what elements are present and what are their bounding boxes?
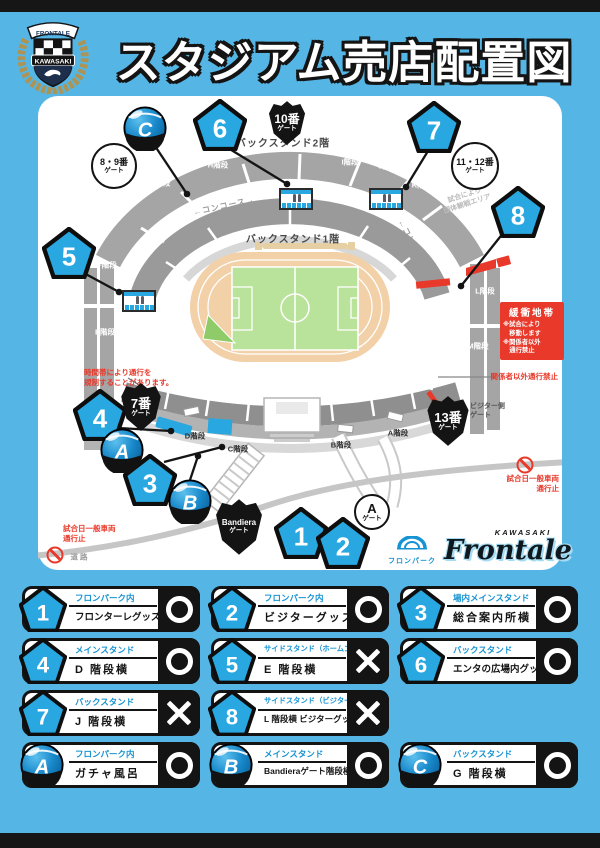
legend-category-label: 場内メインスタンド <box>453 592 529 604</box>
road-label: 道路 <box>71 552 90 563</box>
legend-category-label: フロンパーク内 <box>75 592 135 604</box>
legend-divider <box>447 761 535 763</box>
legend-status-box <box>158 742 200 788</box>
legend-divider <box>69 761 157 763</box>
legend-card-8: 8 サイドスタンド（ビジターゴール裏） L 階段横 ビジターグッズ売店 <box>211 690 389 736</box>
legend-divider <box>258 709 346 711</box>
legend-divider <box>69 657 157 659</box>
stair-label: B階段 <box>331 440 351 451</box>
badge-number: 2 <box>336 532 350 562</box>
stair-label: D階段 <box>185 431 205 442</box>
map-badge-6: 6 <box>193 99 247 151</box>
badge-number: 4 <box>37 652 50 677</box>
badge-number: 7 <box>427 116 441 146</box>
badge-number: 8 <box>226 704 238 729</box>
legend-status-box <box>347 638 389 684</box>
gate-text: Aゲート <box>362 502 382 523</box>
legend-divider <box>69 709 157 711</box>
badge-number: 3 <box>415 600 427 625</box>
kiosk-roof <box>281 190 311 194</box>
shop-kiosk-icon <box>122 290 156 312</box>
legend-status-box <box>158 690 200 736</box>
legend-location-name: Bandieraゲート階段横 <box>264 765 351 777</box>
stair-label: I階段 <box>341 157 358 168</box>
note-line: ビジター側 <box>470 402 505 411</box>
legend-location-name: E 階段横 <box>264 661 317 677</box>
legend-card-A: A フロンパーク内 ガチャ風呂 <box>22 742 200 788</box>
badge-letter: A <box>34 757 50 779</box>
map-badge-A: A <box>99 427 145 473</box>
gate-word: ゲート <box>222 528 256 535</box>
visitor-side-gate-label: ビジター側ゲート <box>470 402 505 420</box>
fronpark-logo: フロンパーク <box>388 536 436 566</box>
badge-letter: C <box>138 120 153 142</box>
legend-location-name: D 階段横 <box>75 661 129 677</box>
stair-label: H階段 <box>208 160 228 171</box>
status-closed-x-icon <box>355 648 381 674</box>
concourse-label: ←コンコース→ <box>192 194 256 218</box>
svg-text:KAWASAKI: KAWASAKI <box>35 58 72 65</box>
map-badge-B: B <box>167 478 213 524</box>
legend-status-box <box>158 586 200 632</box>
legend-card-2: 2 フロンパーク内 ビジターグッズ売店 <box>211 586 389 632</box>
gate-name: 13番 <box>434 411 461 424</box>
legend-card-6: 6 バックスタンド エンタの広場内グッズ売店 <box>400 638 578 684</box>
gate-text: Bandieraゲート <box>222 519 256 535</box>
gate-word: ゲート <box>131 411 151 418</box>
legend-card-4: 4 メインスタンド D 階段横 <box>22 638 200 684</box>
legend-badge-icon: 5 <box>208 638 256 689</box>
legend-location-name: G 階段横 <box>453 765 508 781</box>
shop-kiosk-icon <box>279 188 313 210</box>
note-line: ゲート <box>470 411 505 420</box>
kiosk-person-icon <box>388 194 391 202</box>
legend-category-label: メインスタンド <box>264 748 323 760</box>
legend-status-box <box>347 690 389 736</box>
gate-word: ゲート <box>434 425 461 432</box>
gate-word: ゲート <box>362 516 382 523</box>
gate-text: 11・12番ゲート <box>456 158 494 175</box>
no-entry-icon <box>47 547 64 564</box>
badge-number: 1 <box>294 522 308 552</box>
legend-status-box <box>536 586 578 632</box>
legend-divider <box>69 605 157 607</box>
kiosk-person-icon <box>383 194 386 202</box>
legend-status-box <box>536 638 578 684</box>
red-warning-note: 試合日一般車両通行止 <box>63 524 116 544</box>
buffer-zone-line: 通行禁止 <box>503 347 561 356</box>
badge-number: 1 <box>37 600 49 625</box>
legend-card-1: 1 フロンパーク内 フロンターレグッズ売店 <box>22 586 200 632</box>
kiosk-counter <box>371 203 401 208</box>
legend-card-5: 5 サイドスタンド（ホームゴール裏） E 階段横 <box>211 638 389 684</box>
page-title: スタジアム売店配置図 <box>96 26 592 91</box>
legend-status-box <box>536 742 578 788</box>
map-overlays: バックスタンド2階バックスタンド1階G階段H階段I階段J階段K階段F階段E階段L… <box>38 96 562 570</box>
gate-marker: 11・12番ゲート <box>451 142 499 190</box>
legend-badge-icon: A <box>19 742 65 793</box>
shop-kiosk-icon <box>369 188 403 210</box>
legend-category-label: メインスタンド <box>75 644 134 656</box>
badge-number: 6 <box>415 652 427 677</box>
badge-number: 5 <box>226 652 238 677</box>
restricted-area-note: 試合により団体観戦エリア <box>440 184 492 216</box>
legend-category-label: フロンパーク内 <box>75 748 135 760</box>
frontale-logo: KAWASAKIFrontale <box>444 528 572 564</box>
gate-marker: Aゲート <box>354 494 390 530</box>
legend-category-label: バックスタンド <box>75 696 134 708</box>
legend-badge-icon: C <box>397 742 443 793</box>
legend-status-box <box>347 742 389 788</box>
map-badge-C: C <box>122 105 168 151</box>
legend-badge-icon: 2 <box>208 586 256 637</box>
badge-letter: B <box>183 493 198 515</box>
legend-location-name: J 階段横 <box>75 713 127 729</box>
gate-word: ゲート <box>274 126 299 133</box>
legend-badge-icon: 7 <box>19 690 67 741</box>
status-closed-x-icon <box>355 700 381 726</box>
map-badge-8: 8 <box>491 186 545 238</box>
stair-label: F階段 <box>97 260 117 271</box>
legend-badge-icon: B <box>208 742 254 793</box>
red-warning-note: 試合日一般車両通行止 <box>507 474 560 494</box>
legend-status-box <box>347 586 389 632</box>
note-line: 試合日一般車両 <box>507 474 560 484</box>
legend-category-label: フロンパーク内 <box>264 592 324 604</box>
status-open-circle-icon <box>544 596 571 623</box>
stadium-map-panel: バックスタンド2階バックスタンド1階G階段H階段I階段J階段K階段F階段E階段L… <box>38 96 562 570</box>
stair-label: J階段 <box>378 161 397 172</box>
fronpark-label: フロンパーク <box>388 556 436 566</box>
top-black-bar <box>0 0 600 12</box>
status-open-circle-icon <box>166 648 193 675</box>
stair-label: L階段 <box>475 286 495 297</box>
svg-text:FRONTALE: FRONTALE <box>36 30 70 37</box>
legend-category-label: バックスタンド <box>453 748 512 760</box>
legend-card-3: 3 場内メインスタンド 総合案内所横 <box>400 586 578 632</box>
badge-letter: B <box>224 757 239 779</box>
status-open-circle-icon <box>544 752 571 779</box>
red-warning-note: 関係者以外通行禁止 <box>491 372 559 382</box>
gate-name: 10番 <box>274 113 299 125</box>
buffer-zone-line: ※試合により <box>503 321 561 330</box>
badge-number: 7 <box>37 704 49 729</box>
note-line: 通行止 <box>507 484 560 494</box>
status-open-circle-icon <box>544 648 571 675</box>
gate-word: ゲート <box>100 168 128 175</box>
gate-marker: Bandieraゲート <box>214 498 264 556</box>
legend-badge-icon: 8 <box>208 690 256 741</box>
frontale-script-text: Frontale <box>444 537 572 564</box>
legend-location-name: 総合案内所横 <box>453 609 531 625</box>
gate-marker: 13番ゲート <box>426 395 470 447</box>
legend-divider <box>447 605 535 607</box>
legend-badge-icon: 4 <box>19 638 67 689</box>
map-badge-7: 7 <box>407 101 461 153</box>
map-badge-5: 5 <box>42 227 96 279</box>
bottom-black-bar <box>0 833 600 848</box>
legend-card-C: C バックスタンド G 階段横 <box>400 742 578 788</box>
buffer-zone-title: 緩衝地帯 <box>503 305 561 319</box>
gate-marker: 8・9番ゲート <box>91 143 137 189</box>
note-line: 試合日一般車両 <box>63 524 116 534</box>
stair-label: C階段 <box>228 444 248 455</box>
note-line: 関係者以外通行禁止 <box>491 372 559 382</box>
status-open-circle-icon <box>166 596 193 623</box>
badge-number: 5 <box>62 242 76 272</box>
gate-name: A <box>362 502 382 515</box>
gate-text: 10番ゲート <box>274 113 299 133</box>
buffer-zone-line: 移動します <box>503 330 561 339</box>
badge-number: 6 <box>213 114 227 144</box>
stair-label: A階段 <box>388 428 408 439</box>
no-entry-icon <box>517 457 534 474</box>
stair-label: E階段 <box>95 327 115 338</box>
legend-divider <box>258 761 346 763</box>
legend-badge-icon: 6 <box>397 638 445 689</box>
concourse-label: ←コンコース→ <box>395 218 434 278</box>
badge-letter: C <box>413 757 428 779</box>
status-closed-x-icon <box>166 700 192 726</box>
legend-category-label: バックスタンド <box>453 644 512 656</box>
legend-badge-icon: 3 <box>397 586 445 637</box>
status-open-circle-icon <box>355 752 382 779</box>
gate-name: 11・12番 <box>456 158 494 167</box>
badge-number: 3 <box>143 469 157 499</box>
kiosk-person-icon <box>298 194 301 202</box>
legend-card-B: B メインスタンド Bandieraゲート階段横 <box>211 742 389 788</box>
legend-location-name: ガチャ風呂 <box>75 765 140 781</box>
legend-divider <box>258 605 346 607</box>
status-open-circle-icon <box>355 596 382 623</box>
legend-status-box <box>158 638 200 684</box>
gate-marker: 10番ゲート <box>268 100 306 146</box>
kiosk-roof <box>371 190 401 194</box>
note-line: 通行止 <box>63 534 116 544</box>
kiosk-roof <box>124 292 154 296</box>
stand-section-label: バックスタンド1階 <box>246 231 340 246</box>
gate-text: 8・9番ゲート <box>100 158 128 175</box>
badge-number: 2 <box>226 600 238 625</box>
gate-text: 7番ゲート <box>131 397 151 418</box>
kiosk-counter <box>124 305 154 310</box>
legend-card-7: 7 バックスタンド J 階段横 <box>22 690 200 736</box>
legend-divider <box>258 657 346 659</box>
status-open-circle-icon <box>166 752 193 779</box>
badge-number: 8 <box>511 201 525 231</box>
kiosk-person-icon <box>136 296 139 304</box>
stair-label: K階段 <box>412 180 432 191</box>
gate-marker: 7番ゲート <box>120 382 162 432</box>
kawasaki-frontale-crest-logo: FRONTALE KAWASAKI <box>14 14 92 94</box>
note-line: 時間帯により通行を <box>84 368 173 378</box>
kiosk-person-icon <box>293 194 296 202</box>
legend-badge-icon: 1 <box>19 586 67 637</box>
kiosk-counter <box>281 203 311 208</box>
badge-letter: A <box>114 442 130 464</box>
gate-name: 8・9番 <box>100 158 128 167</box>
stair-label: G階段 <box>150 178 171 189</box>
gate-word: ゲート <box>456 168 494 175</box>
buffer-zone-box: 緩衝地帯※試合により 移動します※関係者以外 通行禁止 <box>500 302 564 360</box>
stair-label: M階段 <box>467 341 488 352</box>
gate-name: 7番 <box>131 397 151 410</box>
gate-text: 13番ゲート <box>434 411 461 432</box>
legend-divider <box>447 657 535 659</box>
kiosk-person-icon <box>141 296 144 304</box>
